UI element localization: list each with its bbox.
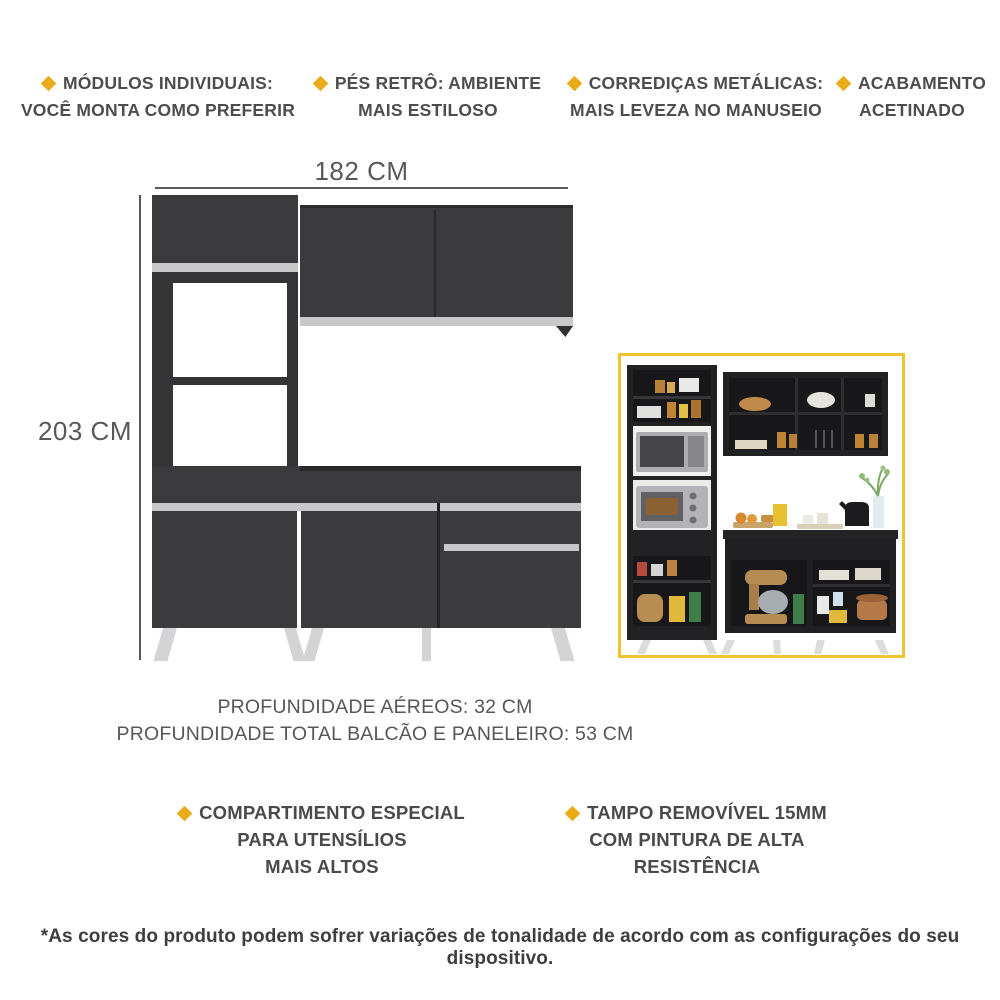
diamond-icon [41,76,57,92]
photo-counter [723,466,898,634]
depth-line: PROFUNDIDADE AÉREOS: 32 CM [75,694,675,721]
counter-door-gap [297,511,301,628]
tower-open-shelf-upper [173,283,287,377]
wall-cabinet-side-panel [556,326,573,337]
diamond-icon [313,76,329,92]
feature-line: TAMPO REMOVÍVEL 15MM [532,799,862,826]
diamond-icon [565,806,581,822]
leg-left [154,628,177,661]
width-dimension-line [155,187,568,189]
wall-cabinet-body [300,205,573,317]
feature-text: RESISTÊNCIA [532,853,862,880]
wall-cabinet-door-divider [434,210,436,317]
width-dimension-label: 182 CM [155,156,568,187]
product-infographic: MÓDULOS INDIVIDUAIS: VOCÊ MONTA COMO PRE… [0,0,1000,1000]
feature-text: ACABAMENTO [858,73,986,93]
counter-door-divider [437,503,440,628]
counter-top-band [152,466,581,503]
feature-text: VOCÊ MONTA COMO PREFERIR [8,97,308,124]
height-dimension-line [139,195,141,660]
feature-compartimento: COMPARTIMENTO ESPECIAL PARA UTENSÍLIOS M… [157,799,487,880]
feature-text: CORREDIÇAS METÁLICAS: [589,73,824,93]
photo-wall-cabinet [723,372,888,456]
depth-line: PROFUNDIDADE TOTAL BALCÃO E PANELEIRO: 5… [75,721,675,748]
leg-center-v-left [284,628,305,661]
photo-legs [637,640,889,654]
feature-text: COMPARTIMENTO ESPECIAL [199,802,465,823]
feature-acabamento: ACABAMENTO ACETINADO [828,70,996,124]
tower-open-shelf-lower [173,385,287,466]
feature-line: PÉS RETRÔ: AMBIENTE [308,70,548,97]
feature-text: PARA UTENSÍLIOS [157,826,487,853]
tower-handle-strip [152,263,298,272]
feature-text: MAIS ALTOS [157,853,487,880]
counter-handle-strip [152,503,581,511]
feature-tampo: TAMPO REMOVÍVEL 15MM COM PINTURA DE ALTA… [532,799,862,880]
feature-text: COM PINTURA DE ALTA [532,826,862,853]
feature-text: MAIS LEVEZA NO MANUSEIO [550,97,842,124]
feature-line: MÓDULOS INDIVIDUAIS: [8,70,308,97]
depth-info: PROFUNDIDADE AÉREOS: 32 CM PROFUNDIDADE … [75,694,675,748]
styled-photo [621,356,902,655]
diamond-icon [177,806,193,822]
feature-text: PÉS RETRÔ: AMBIENTE [335,73,541,93]
feature-text: MÓDULOS INDIVIDUAIS: [63,73,273,93]
leg-center-v-right [303,628,324,661]
leg-middle [422,628,431,661]
feature-text: MAIS ESTILOSO [308,97,548,124]
feature-modulos: MÓDULOS INDIVIDUAIS: VOCÊ MONTA COMO PRE… [8,70,308,124]
photo-tower [627,365,717,640]
counter-doors [152,511,581,628]
tower-top-door [152,195,298,263]
color-disclaimer: *As cores do produto podem sofrer variaç… [0,926,1000,970]
diamond-icon [566,76,582,92]
feature-corredicas: CORREDIÇAS METÁLICAS: MAIS LEVEZA NO MAN… [550,70,842,124]
drawer-handle-strip [444,544,579,551]
feature-line: ACABAMENTO [828,70,996,97]
feature-pes-retro: PÉS RETRÔ: AMBIENTE MAIS ESTILOSO [308,70,548,124]
feature-line: CORREDIÇAS METÁLICAS: [550,70,842,97]
counter-top-edge [300,466,581,471]
styled-photo-inset [618,353,905,658]
diamond-icon [836,76,852,92]
feature-text: ACETINADO [828,97,996,124]
feature-text: TAMPO REMOVÍVEL 15MM [587,802,827,823]
height-dimension-label: 203 CM [28,416,132,447]
leg-right [551,628,574,661]
feature-line: COMPARTIMENTO ESPECIAL [157,799,487,826]
wall-cabinet-handle-strip [300,317,573,326]
